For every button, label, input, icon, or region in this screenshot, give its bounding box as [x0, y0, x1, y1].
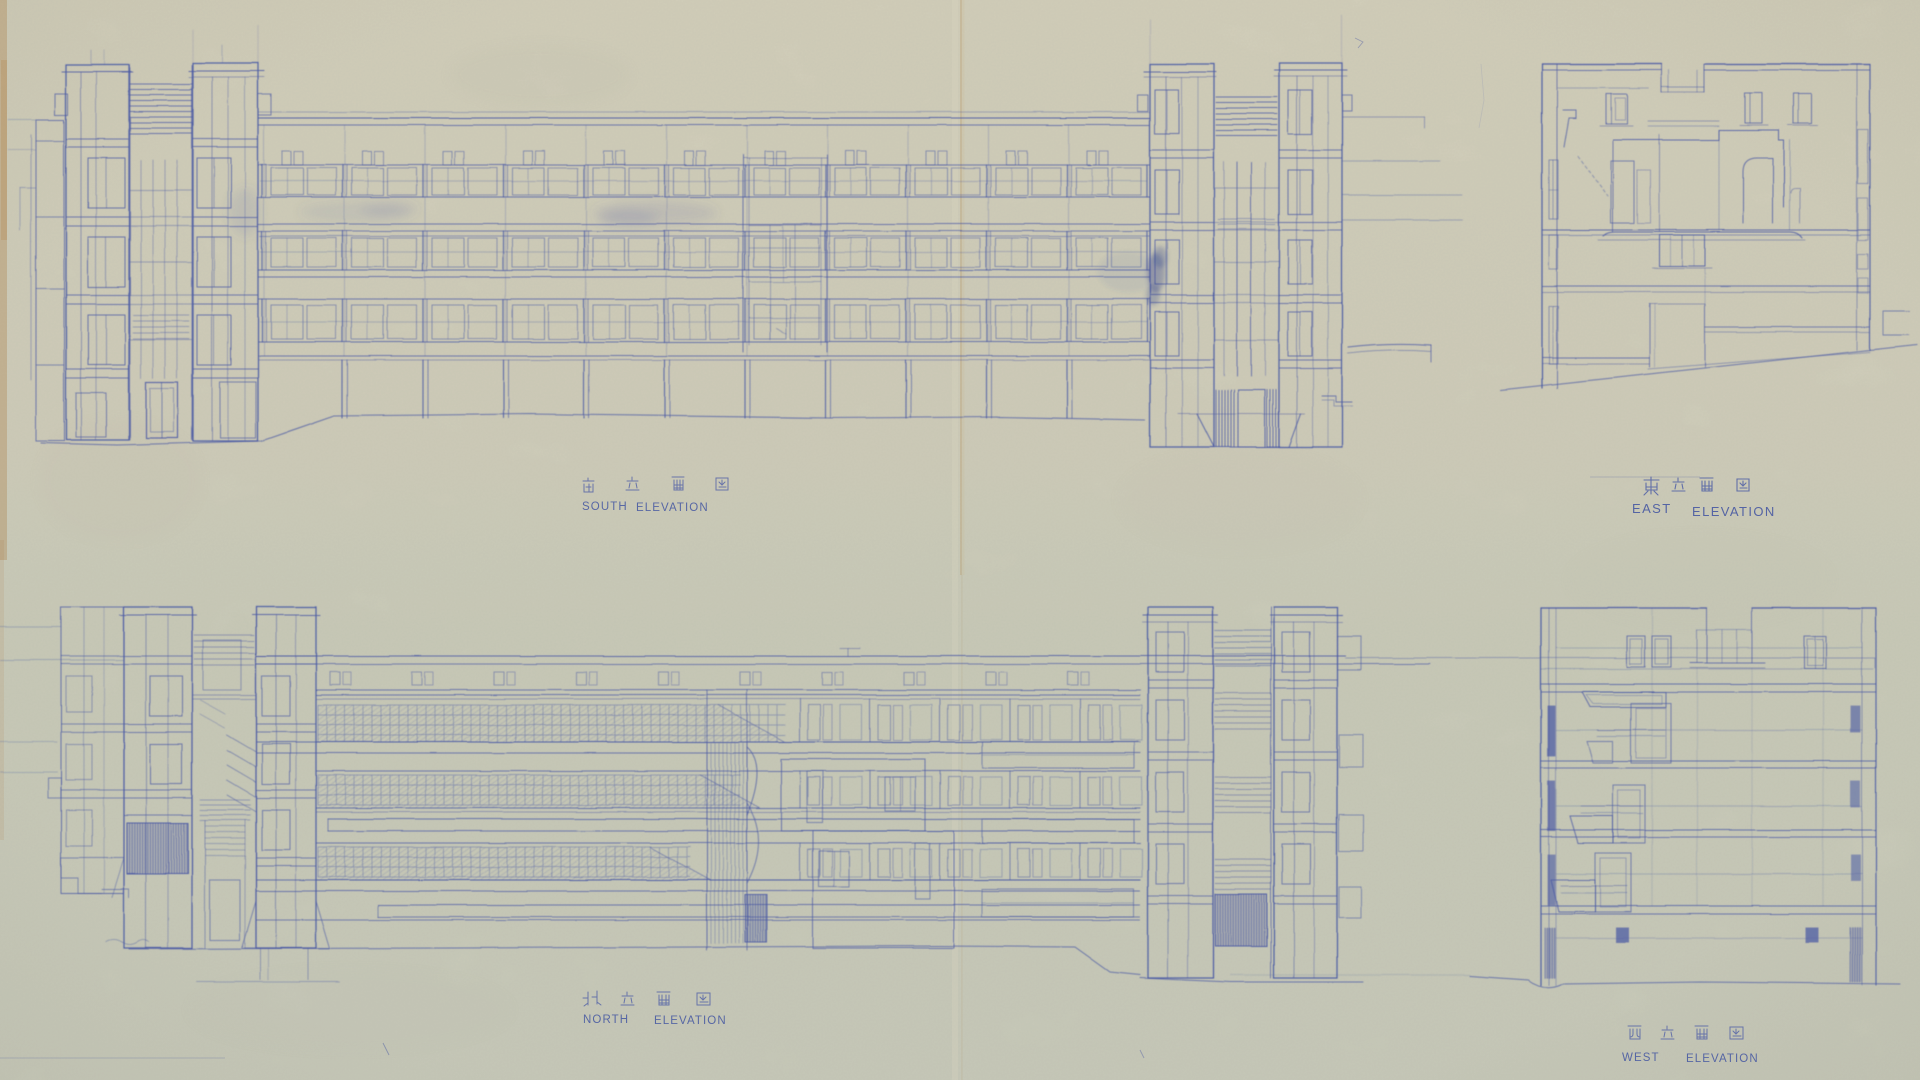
svg-text:ELEVATION: ELEVATION	[1692, 504, 1776, 519]
svg-text:ELEVATION: ELEVATION	[654, 1015, 727, 1027]
svg-text:WEST: WEST	[1622, 1052, 1660, 1064]
svg-text:EAST: EAST	[1632, 501, 1672, 516]
svg-text:ELEVATION: ELEVATION	[636, 502, 709, 514]
svg-text:NORTH: NORTH	[583, 1014, 629, 1026]
svg-text:ELEVATION: ELEVATION	[1686, 1053, 1759, 1065]
svg-text:SOUTH: SOUTH	[582, 501, 628, 513]
